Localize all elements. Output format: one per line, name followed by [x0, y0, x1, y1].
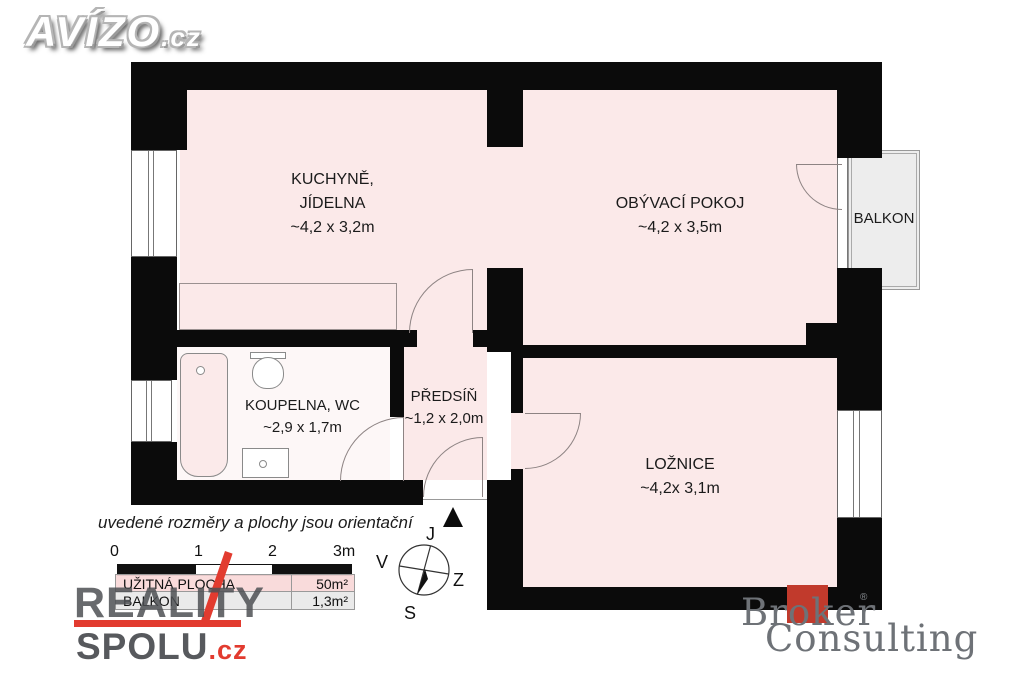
- avizo-logo: AVÍZO.cz: [26, 8, 202, 56]
- balcony-area-value: 1,3m²: [291, 592, 354, 609]
- bedroom-door-opening: [511, 413, 523, 469]
- wall-left-mid: [131, 257, 177, 380]
- wall-right-top: [837, 62, 882, 158]
- bathroom-window: [131, 380, 172, 442]
- wall-entrance-corner: [487, 480, 523, 610]
- kitchen-counter: [179, 283, 397, 330]
- bedroom-window: [837, 410, 882, 518]
- bathtub-drain: [196, 366, 205, 375]
- wall-hall-right-upper: [487, 268, 523, 352]
- kitchen-name-line1: KUCHYNĚ,: [230, 168, 435, 192]
- disclaimer-text: uvedené rozměry a plochy jsou orientační: [98, 513, 413, 533]
- kitchen-living-passage: [487, 147, 523, 268]
- compass-label-west-cz-z: Z: [453, 570, 464, 591]
- kitchen-label: KUCHYNĚ, JÍDELNA ~4,2 x 3,2m: [230, 168, 435, 240]
- wall-right-mid: [837, 268, 882, 410]
- wall-hall-bedroom-upper: [511, 352, 523, 413]
- wall-top: [131, 62, 882, 90]
- living-room-dims: ~4,2 x 3,5m: [580, 216, 780, 240]
- bedroom-dims: ~4,2x 3,1m: [600, 477, 760, 501]
- reality-spolu-logo-line2: SPOLU.cz: [76, 628, 248, 665]
- wall-kitchen-living: [487, 90, 523, 147]
- scale-tick-3: 3m: [333, 543, 355, 561]
- compass-label-east-cz-v: V: [376, 552, 388, 573]
- entrance-threshold: [423, 499, 487, 500]
- living-room-label: OBÝVACÍ POKOJ ~4,2 x 3,5m: [580, 192, 780, 240]
- toilet-bowl: [252, 357, 284, 389]
- sink-faucet: [259, 460, 267, 468]
- wall-bottom-left: [131, 480, 423, 505]
- compass-label-south-cz-j: J: [426, 524, 435, 545]
- avizo-logo-name: AVÍZO: [26, 8, 161, 55]
- floorplan-page: BALKON KUCHYNĚ, JÍDELNA ~4,2 x 3,2m OBÝV: [0, 0, 1024, 683]
- balcony-label: BALKON: [849, 207, 919, 231]
- broker-consulting-logo-word2: Consulting: [765, 620, 978, 657]
- scale-tick-1: 1: [194, 543, 203, 561]
- wall-kitchen-bathroom: [172, 330, 417, 347]
- bedroom-label: LOŽNICE ~4,2x 3,1m: [600, 453, 760, 501]
- usable-area-value: 50m²: [291, 575, 354, 591]
- bathroom-dims: ~2,9 x 1,7m: [225, 417, 380, 439]
- kitchen-dims: ~4,2 x 3,2m: [230, 216, 435, 240]
- hall-name: PŘEDSÍŇ: [398, 386, 490, 408]
- reality-spolu-logo-line1: REALITY: [74, 582, 265, 625]
- bathroom-label: KOUPELNA, WC ~2,9 x 1,7m: [225, 395, 380, 439]
- wall-left-corner: [131, 62, 187, 150]
- spolu-text: SPOLU: [76, 626, 208, 667]
- avizo-logo-tld: .cz: [161, 22, 202, 52]
- bedroom-name: LOŽNICE: [600, 453, 760, 477]
- kitchen-name-line2: JÍDELNA: [230, 192, 435, 216]
- hall-label: PŘEDSÍŇ ~1,2 x 2,0m: [398, 386, 490, 430]
- scale-tick-0: 0: [110, 543, 119, 561]
- wall-living-bedroom: [523, 345, 837, 358]
- spolu-tld: .cz: [208, 635, 247, 665]
- broker-trademark: ®: [860, 592, 867, 603]
- living-room-name: OBÝVACÍ POKOJ: [580, 192, 780, 216]
- wall-junction-block: [806, 323, 837, 345]
- bathroom-name: KOUPELNA, WC: [225, 395, 380, 417]
- hall-dims: ~1,2 x 2,0m: [398, 408, 490, 430]
- compass-label-north-cz-s: S: [404, 603, 416, 624]
- scale-tick-2: 2: [268, 543, 277, 561]
- wall-kitchen-door-stub: [473, 330, 487, 347]
- kitchen-window: [131, 150, 177, 257]
